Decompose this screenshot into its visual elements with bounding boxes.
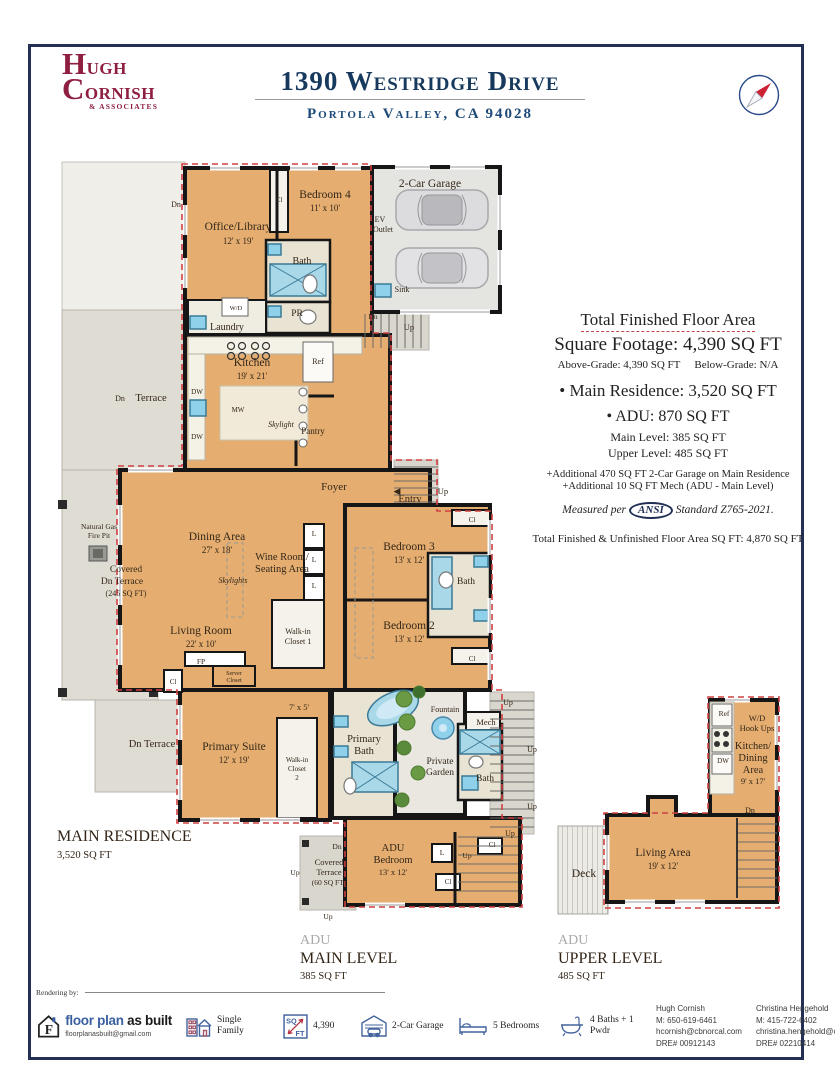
room-primary: Primary Suite <box>202 741 266 753</box>
stat-label: Single Family <box>217 1015 269 1037</box>
adu-upper-title: UPPER LEVEL <box>558 950 662 967</box>
page-title: 1390 Westridge Drive <box>225 66 615 97</box>
hall-dims: 7' x 5' <box>289 702 310 712</box>
linen-adu: L <box>440 848 445 857</box>
agent-name: Hugh Cornish <box>656 1003 742 1015</box>
ansi-badge: ANSI <box>629 502 673 519</box>
measured-post: Standard Z765-2021. <box>676 504 774 516</box>
adu-main-title-gray: ADU <box>300 933 330 948</box>
private-garden-1: Private <box>427 757 454 767</box>
agent-dre: DRE# 00912143 <box>656 1038 742 1050</box>
stat-label: 4 Baths + 1 Pwdr <box>590 1015 642 1037</box>
room-wine-2: Seating Area <box>255 564 309 575</box>
room-adu-kitchen-1: Kitchen/ <box>735 741 771 752</box>
stat-single-family: Single Family <box>186 1014 269 1038</box>
room-adu-bed-dims: 13' x 12' <box>379 867 408 877</box>
room-bath-top: Bath <box>293 256 312 267</box>
room-living: Living Room <box>170 625 232 637</box>
room-dining-dims: 27' x 18' <box>202 545 233 555</box>
adu-wd-1: W/D <box>749 713 766 723</box>
deck-label: Deck <box>572 868 597 880</box>
up-right-1: Up <box>503 698 513 707</box>
main-residence-title: MAIN RESIDENCE <box>57 828 192 845</box>
compass-icon <box>736 72 782 118</box>
room-living-dims: 22' x 10' <box>186 639 217 649</box>
room-dining: Dining Area <box>189 531 246 543</box>
svg-text:SQ: SQ <box>286 1016 297 1025</box>
room-adu-bed-1: ADU <box>382 843 405 854</box>
fountain-label: Fountain <box>431 705 459 714</box>
mw-label: MW <box>232 406 245 414</box>
sqft-total: Square Footage: 4,390 SQ FT <box>522 334 814 356</box>
walkin2-3: 2 <box>295 774 299 782</box>
stat-label: 2-Car Garage <box>392 1021 444 1032</box>
building-icon <box>186 1014 212 1038</box>
linen-1: L <box>312 529 317 538</box>
room-bedroom2: Bedroom 2 <box>383 620 435 632</box>
private-garden-2: Garden <box>426 768 454 778</box>
up-adu-bottom: Up <box>323 912 332 921</box>
dn-terrace-lower: Dn Terrace <box>129 739 176 750</box>
sqft-total-unfinished: Total Finished & Unfinished Floor Area S… <box>522 533 814 545</box>
sqft-additional-garage: +Additional 470 SQ FT 2-Car Garage on Ma… <box>522 469 814 480</box>
room-bedroom4-dims: 11' x 10' <box>310 203 340 213</box>
rendering-by-rule <box>85 992 385 993</box>
up-garage: Up <box>404 322 414 332</box>
room-office-dims: 12' x 19' <box>223 236 254 246</box>
adu-upper-sqft: 485 SQ FT <box>558 971 605 982</box>
logo-line-cornish: CORNISH <box>62 77 158 102</box>
covered-terrace-1: Covered <box>110 565 142 575</box>
main-residence-sqft: 3,520 SQ FT <box>57 850 112 861</box>
adu-terrace-3: (60 SQ FT) <box>312 878 347 887</box>
room-wine-1: Wine Room/ <box>255 552 309 563</box>
up-entry: Up <box>438 486 448 496</box>
agent-mobile: M: 650-619-6461 <box>656 1015 742 1027</box>
server-closet-1: Server <box>226 671 242 677</box>
walkin2-1: Walk-in <box>286 756 309 764</box>
ref-kitchen: Ref <box>312 357 324 366</box>
svg-text:FT: FT <box>296 1029 305 1038</box>
skylights-dining: Skylights <box>219 576 248 585</box>
room-office-library: Office/Library <box>205 221 272 233</box>
stat-bedrooms: 5 Bedrooms <box>458 1015 545 1037</box>
ev-outlet-1: EV <box>375 215 386 224</box>
room-adu-bed-2: Bedroom <box>373 855 412 866</box>
room-bath-beds: Bath <box>457 577 475 587</box>
agent-name: Christina Hengehold <box>756 1003 835 1015</box>
room-kitchen-dims: 19' x 21' <box>237 371 268 381</box>
closet-bed2: Cl <box>469 655 476 663</box>
header-title-block: 1390 Westridge Drive Portola Valley, CA … <box>225 66 615 123</box>
room-bath-adu-main: Bath <box>476 774 494 784</box>
dn-label-top-left: Dn <box>171 200 181 209</box>
dn-terrace-mid: Dn <box>115 394 125 403</box>
room-garage: 2-Car Garage <box>399 178 461 190</box>
room-pantry: Pantry <box>301 426 325 436</box>
room-kitchen: Kitchen <box>234 357 271 369</box>
covered-terrace-2: Dn Terrace <box>101 577 143 587</box>
sqft-icon: SQ FT <box>283 1014 308 1039</box>
garage-icon <box>361 1014 387 1038</box>
ref-adu: Ref <box>719 709 730 718</box>
entry-label: Entry <box>398 494 422 505</box>
up-right-3: Up <box>527 802 537 811</box>
covered-terrace-3: (245 SQ FT) <box>106 589 147 598</box>
brand-black: as built <box>124 1013 172 1028</box>
dw-2: DW <box>191 433 203 441</box>
sqft-main-residence: • Main Residence: 3,520 SQ FT <box>522 381 814 401</box>
room-adu-living: Living Area <box>635 847 690 859</box>
closet-adu-2: Cl <box>445 878 452 886</box>
ev-outlet-2: Outlet <box>373 225 394 234</box>
sqft-additional-mech: +Additional 10 SQ FT Mech (ADU - Main Le… <box>522 481 814 492</box>
sqft-adu-main-level: Main Level: 385 SQ FT <box>522 430 814 445</box>
dn-garage: Dn <box>368 312 377 321</box>
floorplan-logo: F floor plan as built floorplanasbuilt@g… <box>36 1011 172 1041</box>
stat-label: 5 Bedrooms <box>493 1021 545 1032</box>
room-bedroom3-dims: 13' x 12' <box>394 555 425 565</box>
measured-pre: Measured per <box>562 504 626 516</box>
closet-bedroom4: Cl <box>276 196 283 204</box>
floorplan-email: floorplanasbuilt@gmail.com <box>65 1031 172 1038</box>
walkin1-1: Walk-in <box>285 627 311 636</box>
adu-main-title: MAIN LEVEL <box>300 950 397 967</box>
title-divider <box>255 99 585 100</box>
room-adu-kitchen-2: Dining <box>738 753 768 764</box>
square-footage-summary: Total Finished Floor Area Square Footage… <box>522 310 814 545</box>
flyer-page: DnOffice/Library12' x 19'Bedroom 411' x … <box>0 0 835 1080</box>
up-right-2: Up <box>527 745 537 754</box>
room-bedroom2-dims: 13' x 12' <box>394 634 425 644</box>
sqft-grades: Above-Grade: 4,390 SQ FTBelow-Grade: N/A <box>522 359 814 371</box>
closet-bed3: Cl <box>469 516 476 524</box>
dn-adu-terrace: Dn <box>332 842 341 851</box>
room-adu-kitchen-3: Area <box>743 765 764 776</box>
sqft-measured-per: Measured perANSIStandard Z765-2021. <box>522 502 814 519</box>
dn-adu-upper: Dn <box>745 806 755 815</box>
room-pr: PR <box>291 309 303 319</box>
room-bedroom3: Bedroom 3 <box>383 541 435 553</box>
room-pbath-1: Primary <box>347 734 382 745</box>
agent-email: christina.hengehold@cbrealty.com <box>756 1026 835 1038</box>
stat-square-footage: SQ FT 4,390 <box>283 1014 347 1039</box>
agent-email: hcornish@cbnorcal.com <box>656 1026 742 1038</box>
stat-baths: 4 Baths + 1 Pwdr <box>559 1014 642 1038</box>
closet-living: Cl <box>170 678 177 686</box>
adu-main-sqft: 385 SQ FT <box>300 971 347 982</box>
agent-dre: DRE# 02210414 <box>756 1038 835 1050</box>
sqft-below-grade: Below-Grade: N/A <box>694 359 778 371</box>
walkin1-2: Closet 1 <box>285 637 311 646</box>
brand-logo: HUGH CORNISH & ASSOCIATES <box>62 52 158 110</box>
walkin2-2: Closet <box>288 765 306 773</box>
room-foyer: Foyer <box>321 481 347 493</box>
agent-hugh-cornish: Hugh Cornish M: 650-619-6461 hcornish@cb… <box>656 1003 742 1049</box>
terrace-mid: Terrace <box>135 393 167 404</box>
closet-adu-1: Cl <box>489 841 496 849</box>
floorplan-house-icon: F <box>36 1011 61 1041</box>
agent-christina-hengehold: Christina Hengehold M: 415-722-6402 chri… <box>756 1003 835 1049</box>
footer: Rendering by: F floor plan as built floo… <box>36 988 800 1052</box>
rendering-by-label: Rendering by: <box>36 988 79 997</box>
room-pbath-2: Bath <box>354 746 375 757</box>
bed-icon <box>458 1015 488 1037</box>
mech-label: Mech <box>476 717 496 727</box>
wd-label: W/D <box>230 305 243 312</box>
brand-blue: floor plan <box>65 1013 124 1028</box>
stat-label: 4,390 <box>313 1021 347 1032</box>
linen-2: L <box>312 555 317 564</box>
adu-terrace-2: Terrace <box>316 867 342 877</box>
linen-3: L <box>312 581 317 590</box>
room-adu-living-dims: 19' x 12' <box>648 861 679 871</box>
room-laundry: Laundry <box>210 322 244 333</box>
sqft-adu: • ADU: 870 SQ FT <box>522 408 814 426</box>
floorplan-brand: floor plan as built <box>65 1014 172 1028</box>
firepit-2: Fire Pit <box>88 531 111 540</box>
logo-line-associates: & ASSOCIATES <box>89 104 158 110</box>
adu-upper-title-gray: ADU <box>558 933 588 948</box>
agent-mobile: M: 415-722-6402 <box>756 1015 835 1027</box>
room-primary-dims: 12' x 19' <box>219 755 250 765</box>
server-closet-2: Closet <box>226 678 242 684</box>
up-adu-inner: Up <box>462 851 471 860</box>
skylight-kitchen: Skylight <box>268 420 295 429</box>
sink-garage-label: Sink <box>395 285 410 294</box>
bath-icon <box>559 1014 585 1038</box>
dw-adu: DW <box>717 757 729 765</box>
up-adu-left: Up <box>290 868 299 877</box>
room-bedroom4: Bedroom 4 <box>299 189 351 201</box>
sqft-title: Total Finished Floor Area <box>581 310 756 332</box>
svg-text:F: F <box>45 1022 53 1037</box>
rendering-by-row: Rendering by: <box>36 988 800 997</box>
dw-1: DW <box>191 388 203 396</box>
room-adu-kitchen-dims: 9' x 17' <box>741 776 766 786</box>
sqft-adu-upper-level: Upper Level: 485 SQ FT <box>522 446 814 461</box>
sqft-above-grade: Above-Grade: 4,390 SQ FT <box>558 359 681 371</box>
page-subtitle: Portola Valley, CA 94028 <box>225 106 615 123</box>
adu-terrace-1: Covered <box>315 857 345 867</box>
firepit-1: Natural Gas <box>81 522 117 531</box>
up-right-4: Up <box>505 829 515 838</box>
adu-wd-2: Hook Ups <box>740 723 775 733</box>
fp-label: FP <box>197 657 205 666</box>
stat-garage: 2-Car Garage <box>361 1014 444 1038</box>
